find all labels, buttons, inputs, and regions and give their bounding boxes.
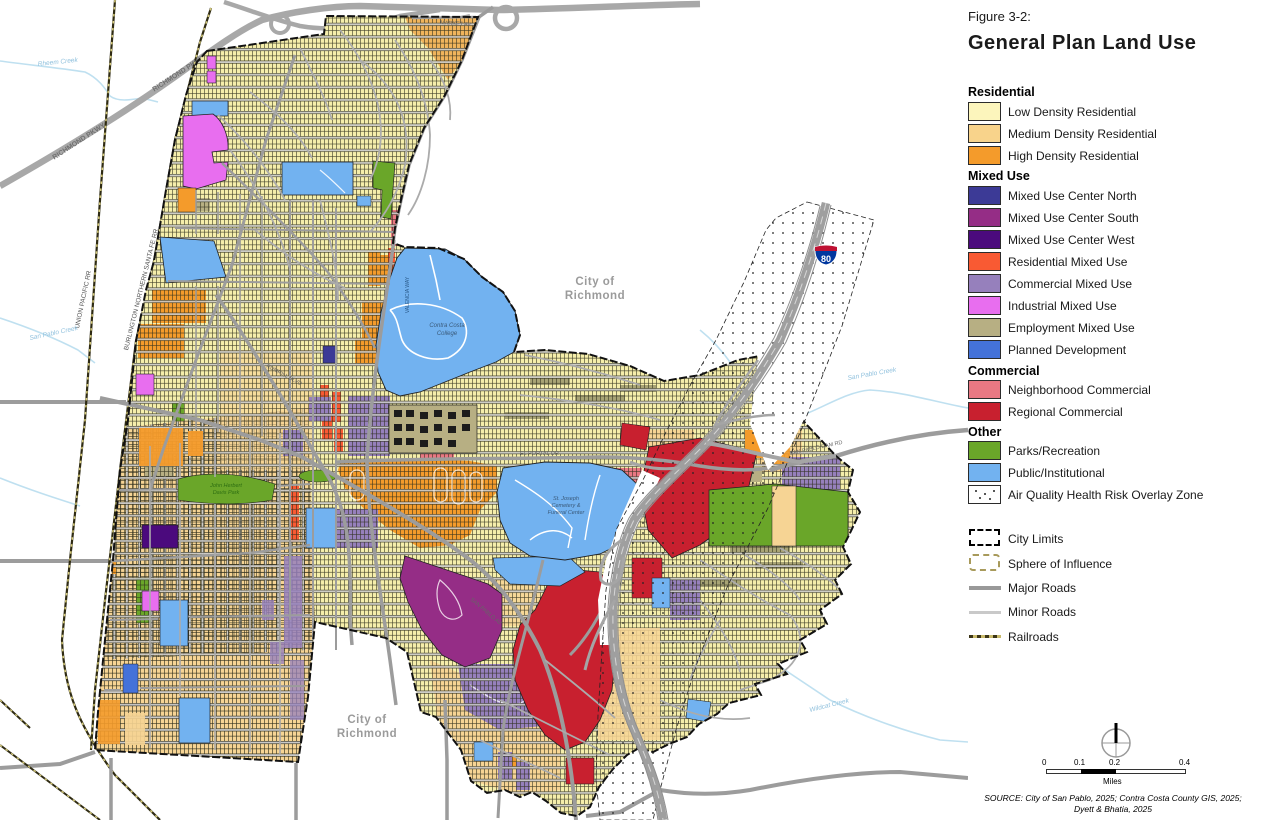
- svg-text:City of: City of: [347, 714, 386, 726]
- svg-text:City of: City of: [575, 276, 614, 288]
- svg-text:Contra Costa: Contra Costa: [429, 323, 465, 329]
- svg-text:EL PORTAL DR: EL PORTAL DR: [520, 451, 559, 457]
- svg-text:St. Joseph: St. Joseph: [553, 496, 579, 502]
- svg-text:Richmond: Richmond: [565, 290, 625, 302]
- svg-text:Richmond: Richmond: [337, 728, 397, 740]
- svg-text:Funeral Center: Funeral Center: [548, 510, 586, 516]
- svg-text:Davis Park: Davis Park: [213, 490, 240, 496]
- svg-text:80: 80: [821, 254, 831, 264]
- svg-text:Cemetery &: Cemetery &: [551, 503, 580, 509]
- svg-text:VALENCIA WAY: VALENCIA WAY: [405, 276, 411, 313]
- svg-text:College: College: [437, 331, 458, 337]
- svg-text:John Herbert: John Herbert: [209, 483, 242, 489]
